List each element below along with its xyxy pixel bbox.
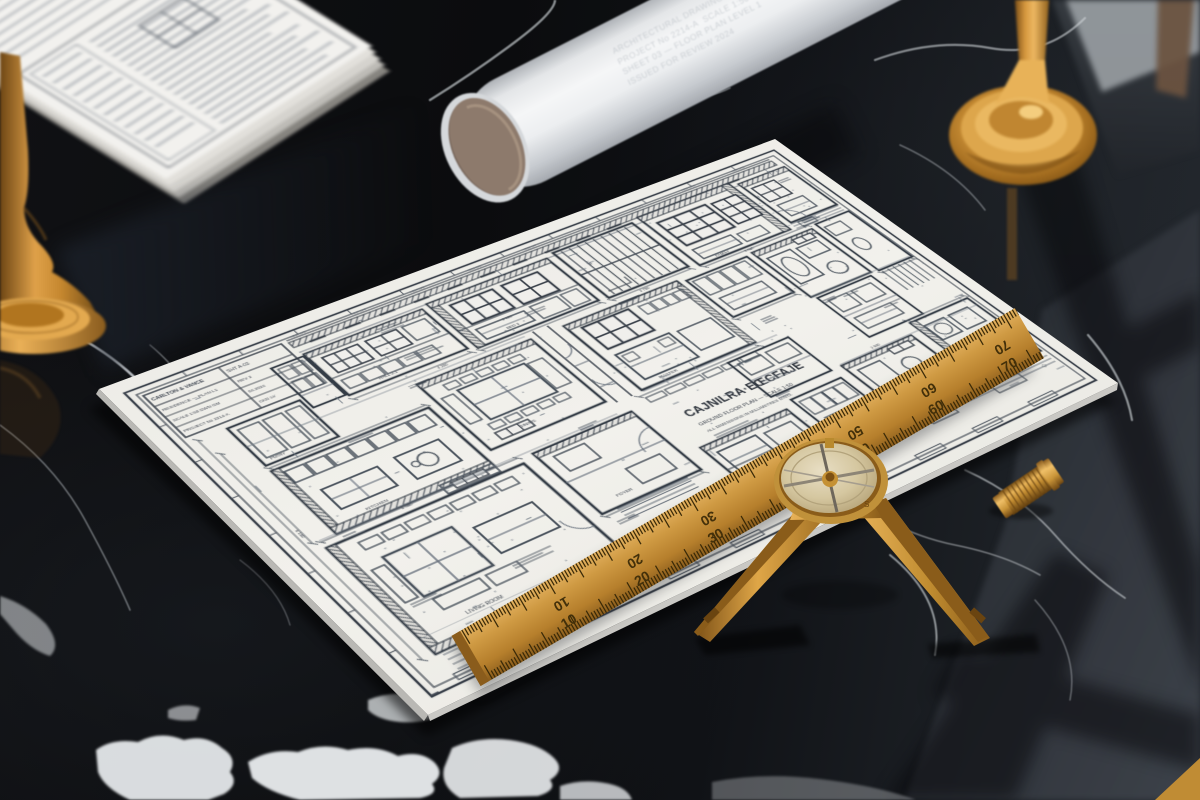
svg-text:FOYER: FOYER: [614, 487, 635, 498]
svg-text:HALL 2.1: HALL 2.1: [377, 370, 399, 380]
svg-text:4 200: 4 200: [436, 362, 450, 369]
svg-text:CKD LV: CKD LV: [258, 394, 277, 403]
svg-text:S: S: [864, 500, 869, 509]
svg-text:6 150: 6 150: [294, 529, 308, 539]
svg-text:04.2024: 04.2024: [247, 384, 267, 394]
svg-text:3 120: 3 120: [500, 314, 514, 321]
svg-text:REV 2: REV 2: [236, 375, 253, 384]
